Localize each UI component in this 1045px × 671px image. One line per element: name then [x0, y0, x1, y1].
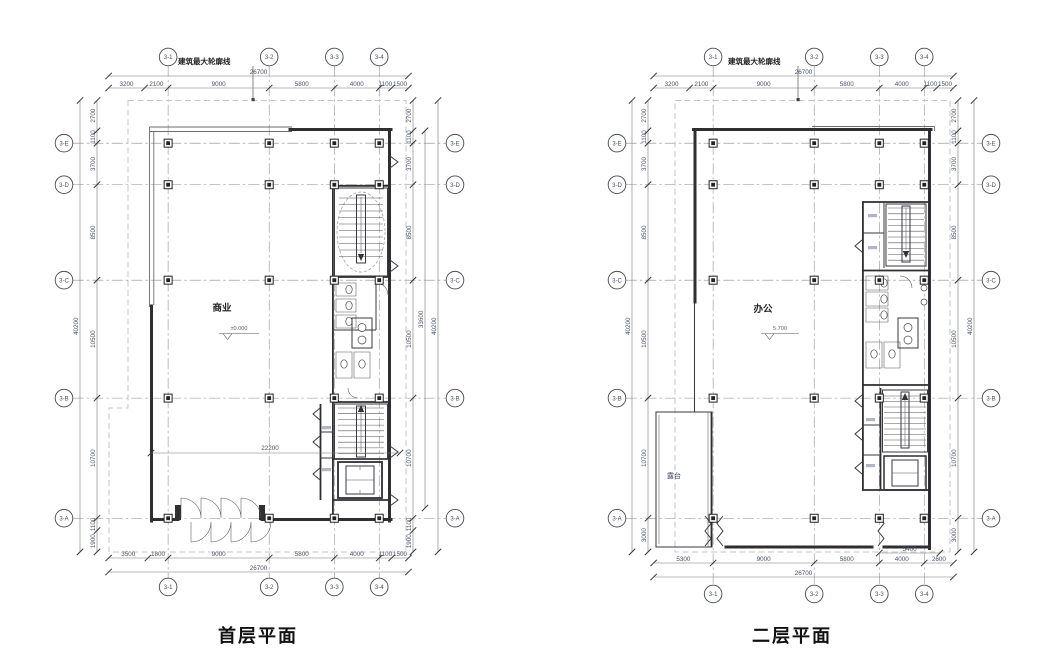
room-label: 商业	[212, 302, 232, 314]
door-symbols-bottom	[705, 516, 884, 546]
dim-value: 1100	[90, 517, 97, 531]
dim-total: 26700	[250, 69, 268, 76]
micro-text	[868, 246, 877, 249]
dim-value: 10700	[951, 449, 958, 467]
grid-bubble-label: 3-E	[612, 141, 621, 147]
svg-text:±0.000: ±0.000	[230, 326, 247, 332]
column-core	[332, 396, 336, 400]
dim-total: 40200	[625, 317, 632, 335]
dim-value: 9000	[757, 81, 772, 88]
dim-value: 4000	[350, 551, 365, 558]
toilet-room	[336, 283, 388, 398]
outline-label: 建筑最大轮廓线	[727, 56, 781, 66]
elevator-2	[884, 456, 926, 490]
grid-bubble-label: 3-C	[450, 278, 460, 284]
grid-bubble-label: 3-E	[450, 141, 459, 147]
dim-value: 8500	[641, 225, 648, 240]
dim-value: 1500	[393, 81, 408, 88]
elevation-marker: 5.700	[761, 326, 799, 340]
grid-bubble-label: 3-1	[164, 585, 173, 591]
micro-text	[322, 468, 331, 471]
svg-text:5.700: 5.700	[773, 326, 787, 332]
column-core	[711, 396, 715, 400]
dim-value: 2700	[641, 108, 648, 123]
micro-text	[866, 464, 875, 467]
dim-value: 1900	[406, 534, 413, 549]
column-core	[922, 278, 926, 282]
plan-title-second-floor: 二层平面	[707, 622, 877, 648]
column-core	[332, 516, 336, 520]
dim-value: 1100	[379, 551, 393, 558]
entrance-doors	[175, 498, 271, 542]
grid-bubble-label: 3-1	[709, 55, 718, 61]
grid-lines-layer	[73, 66, 982, 585]
dim-value: 5800	[295, 551, 310, 558]
grid-bubble-label: 3-D	[450, 183, 460, 189]
dim-value: 2700	[406, 108, 413, 123]
dim-value: 1900	[90, 534, 97, 549]
column-core	[267, 396, 271, 400]
grid-bubble-label: 3-B	[986, 396, 995, 402]
micro-text	[866, 418, 875, 421]
grid-bubble-label: 3-A	[986, 516, 995, 522]
dim-value: 9000	[212, 81, 227, 88]
dim-value: 9000	[212, 551, 227, 558]
dim-value: 1100	[924, 81, 938, 88]
grid-bubble-label: 3-1	[164, 55, 173, 61]
dim-total: 26700	[250, 565, 268, 572]
dim-value: 9000	[757, 556, 772, 563]
grid-bubble-label: 3-2	[265, 55, 274, 61]
staircase-upper-2	[886, 204, 926, 266]
svg-text:露台: 露台	[667, 471, 681, 480]
dim-total: 40200	[73, 317, 80, 335]
terrace: 露台	[656, 412, 712, 547]
column-core	[377, 183, 381, 187]
dim-value: 10700	[90, 449, 97, 467]
dim-value: 3700	[951, 156, 958, 171]
column-core	[877, 278, 881, 282]
dim-value: 4000	[895, 81, 910, 88]
column-core	[332, 141, 336, 145]
grid-bubble-label: 3-C	[986, 278, 996, 284]
dim-value: 8500	[90, 225, 97, 240]
dim-value: 1100	[379, 81, 393, 88]
dim-value: 10500	[951, 330, 958, 348]
column-core	[377, 516, 381, 520]
grid-bubble-label: 3-E	[986, 141, 995, 147]
grid-bubble-label: 3-D	[986, 183, 996, 189]
dim-total: 40200	[431, 317, 438, 335]
grid-bubble-label: 3-A	[59, 516, 68, 522]
column-core	[922, 183, 926, 187]
column-core	[166, 183, 170, 187]
column-core	[267, 278, 271, 282]
column-core	[711, 278, 715, 282]
toilet-room-2	[866, 276, 927, 368]
grid-bubble-label: 3-4	[920, 592, 929, 598]
column-core	[166, 278, 170, 282]
column-core	[877, 516, 881, 520]
floor-plans-drawing: 建筑最大轮廓线	[0, 0, 1045, 671]
column-core	[267, 183, 271, 187]
dim-value: 10500	[641, 330, 648, 348]
dim-value: 5800	[295, 81, 310, 88]
column-core	[922, 396, 926, 400]
grid-bubble-label: 3-C	[59, 278, 69, 284]
column-core	[812, 516, 816, 520]
grid-bubble-label: 3-2	[810, 592, 819, 598]
dim-value: 2100	[149, 81, 164, 88]
grid-bubble-label: 3-E	[59, 141, 68, 147]
dim-value: 3700	[406, 156, 413, 171]
interior-dimension: 22200	[148, 445, 403, 456]
micro-text	[322, 426, 331, 429]
grid-bubble-label: 3-2	[810, 55, 819, 61]
dim-value: 1500	[393, 551, 408, 558]
dim-value: 1500	[938, 81, 953, 88]
dim-value: 2600	[932, 556, 947, 563]
plan-title-first-floor: 首层平面	[173, 622, 343, 648]
dim-value: 5800	[840, 81, 855, 88]
elevation-marker: ±0.000	[219, 326, 259, 340]
outline-label: 建筑最大轮廓线	[177, 56, 231, 66]
dim-value: 5300	[676, 556, 691, 563]
column-core	[711, 141, 715, 145]
grid-bubble-label: 3-A	[450, 516, 459, 522]
dim-value: 3200	[120, 81, 135, 88]
column-core	[711, 183, 715, 187]
column-core	[812, 183, 816, 187]
room-label: 办公	[753, 303, 773, 315]
outline-leader-dot	[797, 98, 800, 101]
grid-bubble-label: 3-3	[330, 55, 339, 61]
grid-bubble-label: 3-4	[375, 585, 384, 591]
grid-bubble-label: 3-3	[330, 585, 339, 591]
grid-bubble-label: 3-4	[920, 55, 929, 61]
dim-value: 10700	[406, 449, 413, 467]
column-core	[166, 396, 170, 400]
dim-value: 1100	[90, 130, 97, 144]
column-core	[166, 141, 170, 145]
column-core	[377, 278, 381, 282]
dim-value: 10500	[90, 330, 97, 348]
grid-bubble-label: 3-B	[612, 396, 621, 402]
column-core	[877, 183, 881, 187]
column-core	[877, 396, 881, 400]
dim-total: 40200	[967, 317, 974, 335]
grid-bubble-label: 3-3	[875, 55, 884, 61]
micro-text	[868, 214, 877, 217]
first-floor-plan: 建筑最大轮廓线	[109, 56, 406, 552]
dim-value: 3500	[121, 551, 136, 558]
dim-value: 2700	[951, 108, 958, 123]
staircase-lower	[335, 404, 388, 459]
dim-value: 10500	[406, 330, 413, 348]
column-core	[922, 516, 926, 520]
dim-total: 5400	[903, 546, 918, 553]
dim-value: 3700	[90, 156, 97, 171]
dim-total: 26700	[795, 570, 813, 577]
floor-plan-sheet: 建筑最大轮廓线	[0, 0, 1045, 671]
dim-value: 3200	[665, 81, 680, 88]
dim-value: 8500	[406, 225, 413, 240]
dim-value: 4000	[895, 556, 910, 563]
column-core	[877, 141, 881, 145]
grid-bubble-label: 3-D	[59, 183, 69, 189]
dim-value: 3000	[951, 528, 958, 543]
door-symbols-core-left	[313, 408, 320, 480]
column-core	[922, 141, 926, 145]
column-core	[377, 396, 381, 400]
column-core	[267, 516, 271, 520]
door-symbols-right-wall	[390, 156, 398, 506]
column-core	[332, 183, 336, 187]
staircase-upper	[335, 188, 388, 276]
grid-bubble-label: 3-C	[612, 278, 622, 284]
dim-value: 1800	[151, 551, 166, 558]
dim-value: 3700	[641, 156, 648, 171]
dim-value: 1100	[406, 130, 413, 144]
column-core	[812, 141, 816, 145]
grid-bubble-label: 3-A	[612, 516, 621, 522]
dim-value: 4000	[350, 81, 365, 88]
column-core	[332, 278, 336, 282]
grid-bubble-label: 3-B	[450, 396, 459, 402]
dim-value: 1100	[406, 517, 413, 531]
dim-value: 2100	[694, 81, 709, 88]
dim-value: 1100	[641, 130, 648, 144]
grid-bubble-label: 3-B	[59, 396, 68, 402]
dim-value: 3000	[641, 528, 648, 543]
grid-bubble-label: 3-1	[709, 592, 718, 598]
dim-total: 26700	[795, 69, 813, 76]
dim-value: 1100	[951, 130, 958, 144]
svg-text:22200: 22200	[261, 445, 279, 452]
grid-bubble-label: 3-3	[875, 592, 884, 598]
grid-bubble-label: 3-2	[265, 585, 274, 591]
dim-value: 8500	[951, 225, 958, 240]
column-core	[812, 278, 816, 282]
dim-value: 10700	[641, 449, 648, 467]
second-floor-plan: 建筑最大轮廓线 露台	[656, 56, 950, 552]
column-core	[812, 396, 816, 400]
grid-bubble-label: 3-D	[612, 183, 622, 189]
column-core	[166, 516, 170, 520]
dim-value: 2700	[90, 108, 97, 123]
column-core	[377, 141, 381, 145]
grid-bubble-label: 3-4	[375, 55, 384, 61]
outline-leader-dot	[252, 98, 255, 101]
elevator	[338, 462, 382, 498]
column-core	[267, 141, 271, 145]
column-core	[711, 516, 715, 520]
dim-value: 5800	[840, 556, 855, 563]
dim-total: 33600	[418, 310, 425, 328]
